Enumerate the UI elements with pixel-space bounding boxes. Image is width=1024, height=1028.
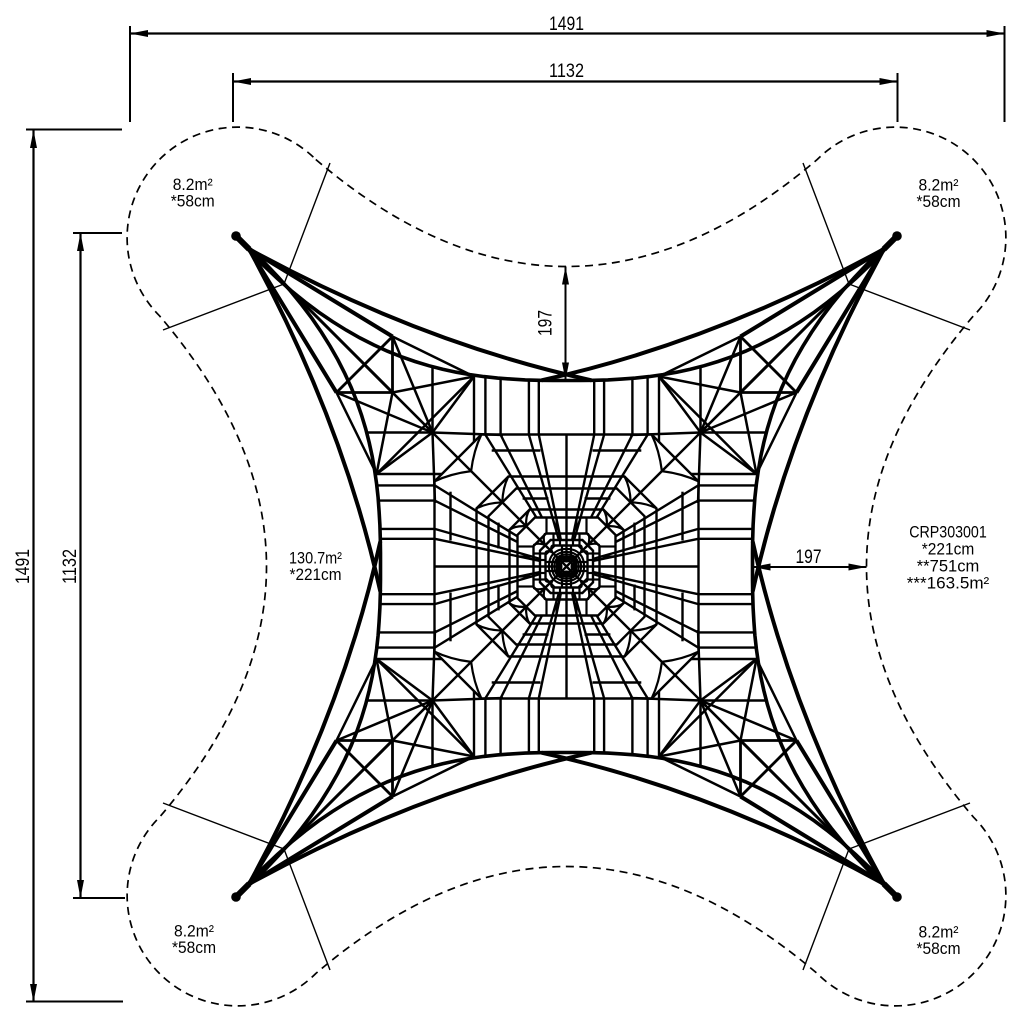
- svg-text:***163.5m²: ***163.5m²: [907, 575, 990, 593]
- svg-text:*58cm: *58cm: [171, 192, 215, 210]
- svg-text:1491: 1491: [549, 14, 584, 35]
- svg-text:*221cm: *221cm: [290, 566, 342, 584]
- svg-text:130.7m²: 130.7m²: [289, 550, 343, 568]
- svg-text:**751cm: **751cm: [917, 558, 980, 576]
- svg-text:1132: 1132: [549, 61, 584, 82]
- svg-text:8.2m²: 8.2m²: [919, 924, 960, 942]
- svg-text:197: 197: [796, 547, 822, 568]
- svg-text:1491: 1491: [13, 549, 34, 584]
- svg-text:*221cm: *221cm: [922, 541, 975, 559]
- svg-text:8.2m²: 8.2m²: [174, 923, 215, 941]
- svg-text:8.2m²: 8.2m²: [173, 176, 214, 194]
- svg-text:*58cm: *58cm: [172, 939, 216, 957]
- svg-text:*58cm: *58cm: [917, 193, 961, 211]
- svg-text:*58cm: *58cm: [917, 940, 961, 958]
- svg-text:CRP303001: CRP303001: [909, 524, 987, 542]
- svg-text:1132: 1132: [60, 549, 81, 584]
- svg-text:8.2m²: 8.2m²: [919, 177, 960, 195]
- svg-text:197: 197: [536, 310, 557, 336]
